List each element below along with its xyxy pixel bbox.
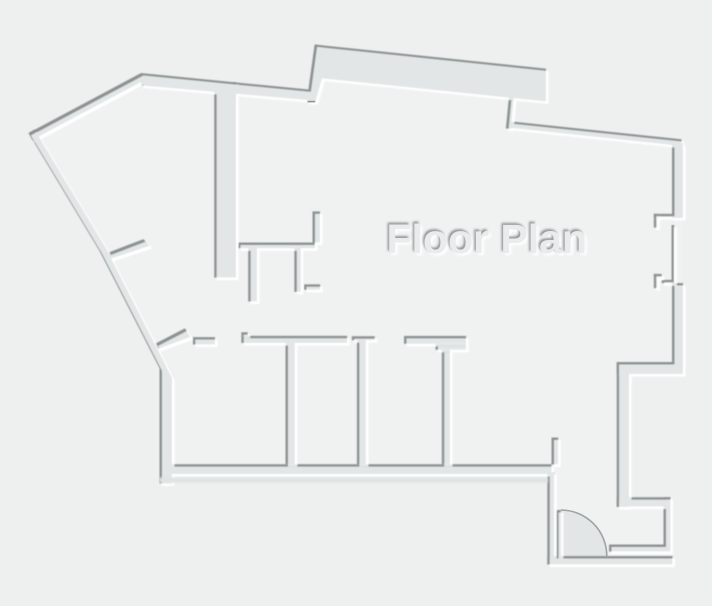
svg-text:Floor Plan: Floor Plan bbox=[387, 216, 587, 262]
